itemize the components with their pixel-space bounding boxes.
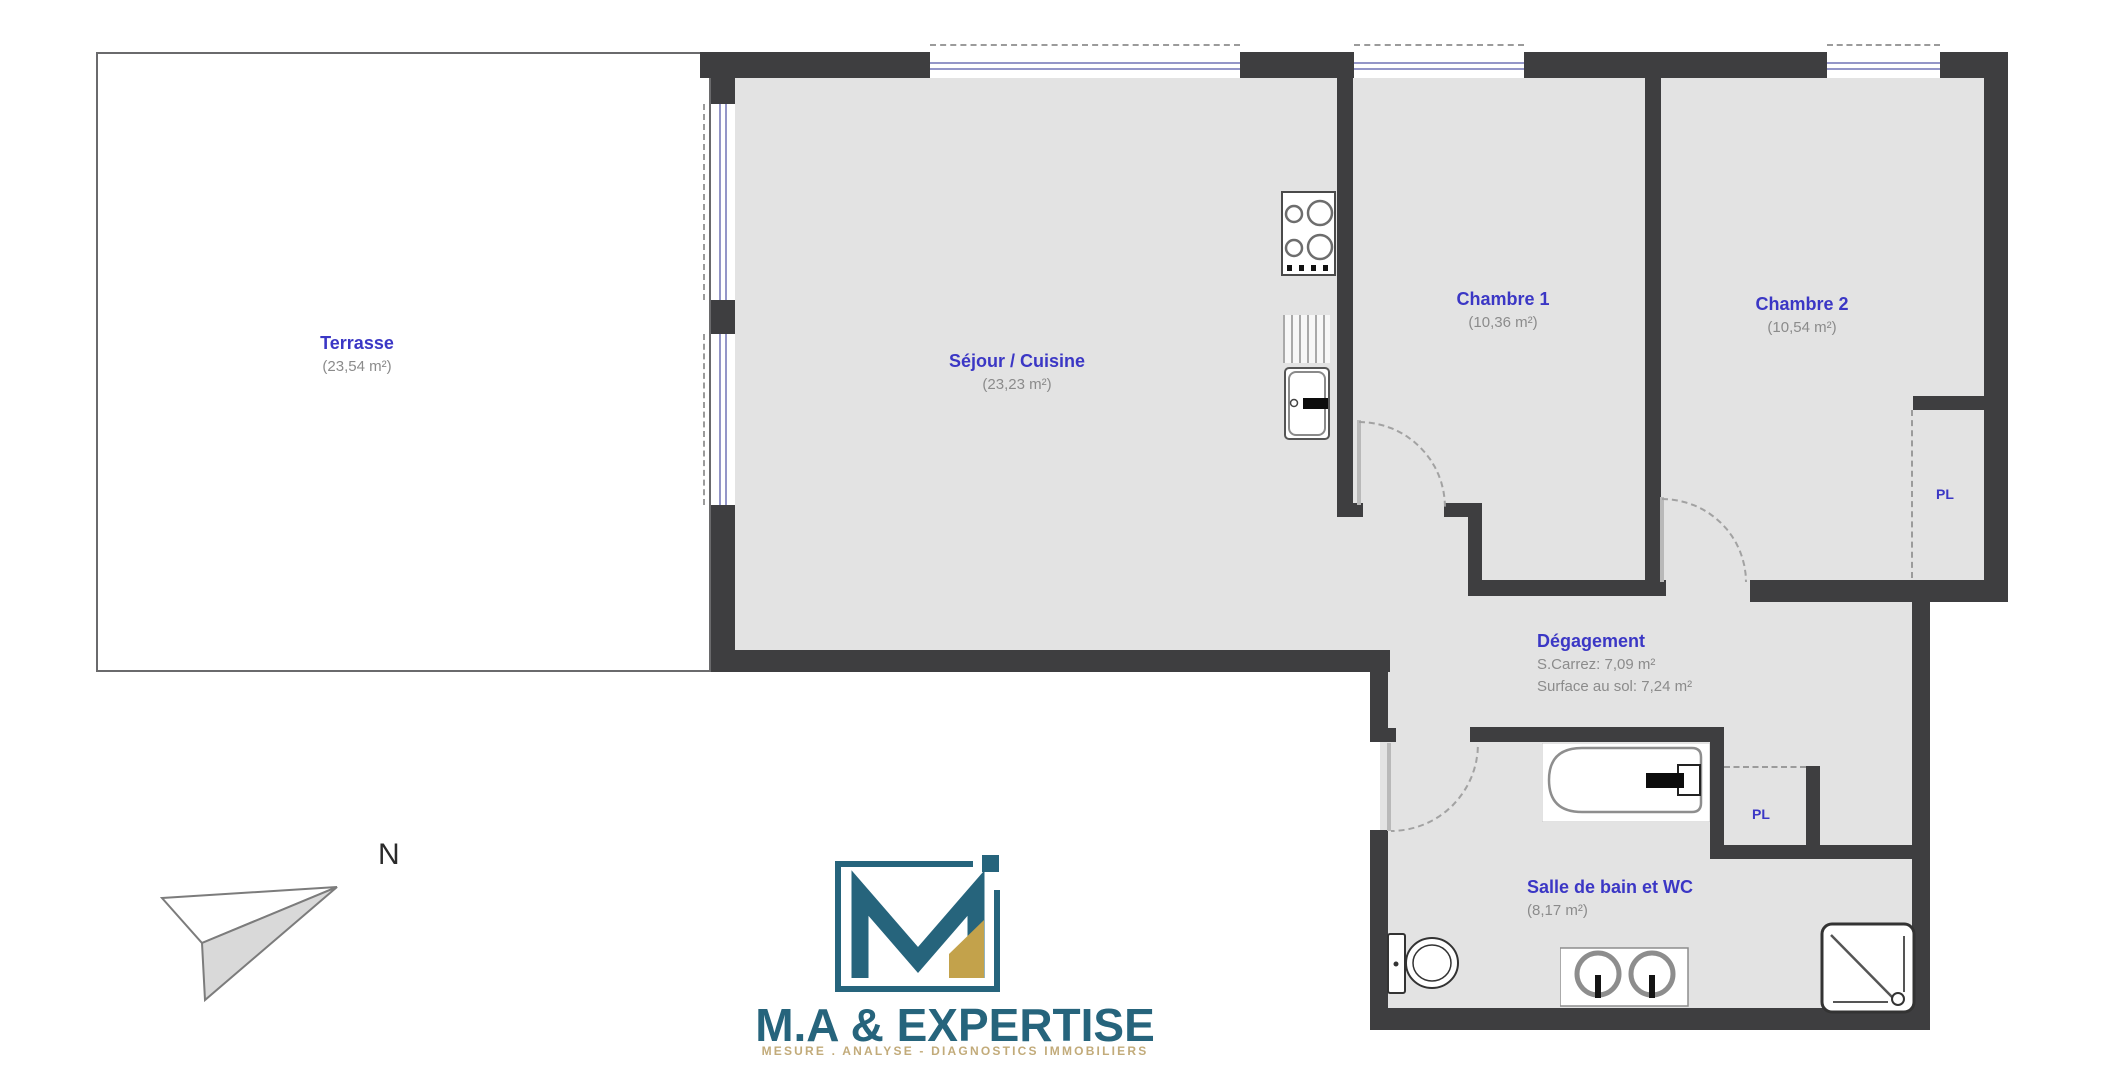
room-name: Salle de bain et WC xyxy=(1527,874,1787,900)
glazing-line xyxy=(1354,68,1524,70)
wall xyxy=(711,52,735,104)
wall xyxy=(1913,396,1986,410)
room-label-degagement: Dégagement S.Carrez: 7,09 m² Surface au … xyxy=(1537,628,1867,698)
wall xyxy=(1710,727,1724,857)
glazing-line xyxy=(1354,62,1524,64)
room-area: (10,54 m²) xyxy=(1702,317,1902,339)
wall xyxy=(711,505,735,672)
wall xyxy=(1370,728,1396,742)
wall xyxy=(1645,64,1661,596)
drainboard-icon xyxy=(1283,315,1330,363)
closet-label-pl-chambre2: PL xyxy=(1936,486,1954,502)
closet-dash-degagement xyxy=(1724,766,1806,768)
window-chambre2-top xyxy=(1827,52,1940,78)
room-label-chambre2: Chambre 2 (10,54 m²) xyxy=(1702,291,1902,339)
room-name: Terrasse xyxy=(257,330,457,356)
room-name: Dégagement xyxy=(1537,628,1867,654)
window-dash xyxy=(1354,44,1524,46)
double-sink-icon xyxy=(1560,946,1690,1008)
company-tagline: MESURE . ANALYSE - DIAGNOSTICS IMMOBILIE… xyxy=(735,1044,1175,1058)
room-area-sol: Surface au sol: 7,24 m² xyxy=(1537,676,1867,698)
closet-dash-chambre2 xyxy=(1911,410,1913,578)
toilet-icon xyxy=(1386,930,1464,1000)
glazing-line xyxy=(719,334,721,505)
stove-icon xyxy=(1281,191,1336,276)
room-label-sejour-cuisine: Séjour / Cuisine (23,23 m²) xyxy=(917,348,1117,396)
glazing-line xyxy=(1827,62,1940,64)
window-dash xyxy=(1827,44,1940,46)
room-area-carrez: S.Carrez: 7,09 m² xyxy=(1537,654,1867,676)
wall xyxy=(1750,580,2008,602)
window-dash xyxy=(703,104,705,300)
room-name: Séjour / Cuisine xyxy=(917,348,1117,374)
window-dash xyxy=(930,44,1240,46)
room-area: (23,54 m²) xyxy=(257,356,457,378)
room-area: (10,36 m²) xyxy=(1403,312,1603,334)
floor-plan: Terrasse (23,54 m²) Séjour / Cuisine (23… xyxy=(0,0,2106,1080)
wall xyxy=(1524,52,1827,78)
room-area: (8,17 m²) xyxy=(1527,900,1787,922)
window-sejour-left-lower xyxy=(711,334,735,505)
shower-icon xyxy=(1820,922,1916,1014)
wall xyxy=(711,650,1390,672)
room-label-salle-de-bain: Salle de bain et WC (8,17 m²) xyxy=(1527,874,1787,922)
bathtub-icon xyxy=(1542,743,1710,822)
wall xyxy=(1710,845,1930,859)
wall xyxy=(1470,727,1724,742)
room-label-terrasse: Terrasse (23,54 m²) xyxy=(257,330,457,378)
room-label-chambre1: Chambre 1 (10,36 m²) xyxy=(1403,286,1603,334)
window-sejour-top xyxy=(930,52,1240,78)
glazing-line xyxy=(719,104,721,300)
glazing-line xyxy=(1827,68,1940,70)
wall xyxy=(1468,580,1666,596)
room-area: (23,23 m²) xyxy=(917,374,1117,396)
wall xyxy=(1984,52,2008,602)
window-dash xyxy=(703,334,705,505)
window-sejour-left-upper xyxy=(711,104,735,300)
closet-label-pl-degagement: PL xyxy=(1752,806,1770,822)
glazing-line xyxy=(725,104,727,300)
glazing-line xyxy=(725,334,727,505)
north-label: N xyxy=(378,838,400,872)
wall xyxy=(711,300,735,334)
room-name: Chambre 2 xyxy=(1702,291,1902,317)
glazing-line xyxy=(930,62,1240,64)
north-arrow-icon xyxy=(150,850,410,1015)
kitchen-sink-icon xyxy=(1284,367,1330,440)
wall xyxy=(1337,64,1353,505)
glazing-line xyxy=(930,68,1240,70)
window-chambre1-top xyxy=(1354,52,1524,78)
room-name: Chambre 1 xyxy=(1403,286,1603,312)
company-logo-icon xyxy=(830,850,1020,995)
